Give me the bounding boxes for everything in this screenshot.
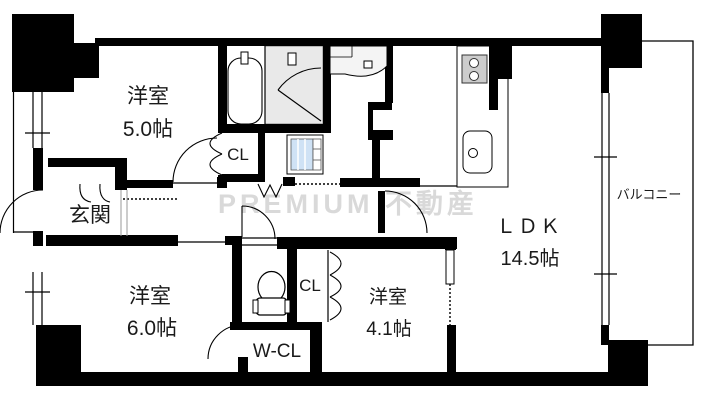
watermark: PREMIUM 不動産 [218,188,478,219]
window-left-bottom [25,272,50,325]
stove-icon [462,55,487,83]
bedroom6-size: 6.0帖 [127,317,177,340]
window-balcony [594,93,617,325]
ldk-label: ＬＤＫ [496,216,562,238]
floorplan: PREMIUM 不動産 [0,0,709,404]
ldk-size: 14.5帖 [501,247,560,270]
entrance-storage-icon [80,184,110,202]
washing-machine-icon [287,135,323,174]
wcl-door-swing-icon [208,325,242,359]
room-labels: 洋室 5.0帖 CL 玄関 洋室 6.0帖 W-CL CL 洋室 4.1帖 ＬＤ… [69,85,681,362]
washbasin-icon [330,46,387,76]
kitchen-sink-icon [463,131,492,173]
balcony-label: バルコニー [617,187,682,202]
bedroom6-label: 洋室 [129,285,171,308]
floorplan-drawing: PREMIUM 不動産 [0,0,709,404]
entrance-hall-divider [121,190,127,236]
window-left-top [25,92,50,148]
closet-upper-bifold-icon [210,133,222,175]
bedroom5-size: 5.0帖 [123,118,173,141]
bedroom4-size: 4.1帖 [366,318,411,340]
closet-lower-label: CL [299,276,321,295]
bedroom5-label: 洋室 [127,85,169,108]
walk-in-closet-label: W-CL [253,341,301,362]
closet-upper-label: CL [227,145,249,164]
hall-ldk-door-leaf [378,191,385,233]
toilet-icon [253,272,290,316]
bathtub-icon [228,58,262,124]
bedroom4-label: 洋室 [369,286,407,308]
sliding-door [446,250,454,284]
closet-lower-bifold-icon [330,252,341,320]
bath-faucet-icon [241,52,248,64]
shower-faucet-icon [288,53,296,65]
entrance-door-swing-icon [0,190,43,233]
entrance-label: 玄関 [69,204,111,227]
